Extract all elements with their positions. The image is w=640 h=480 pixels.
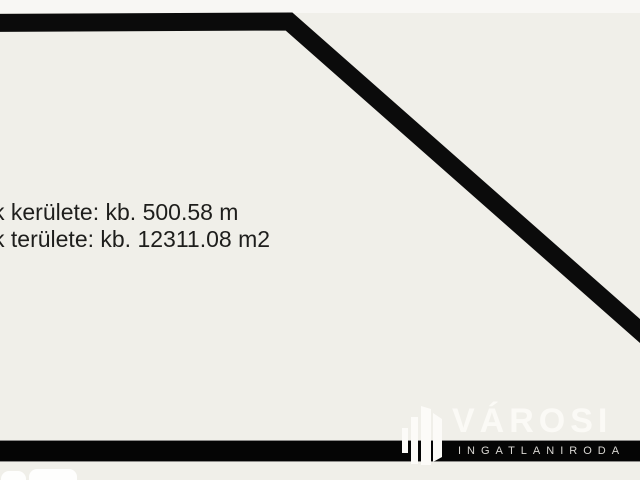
plot-boundary-line — [0, 22, 640, 347]
building-tower — [421, 406, 431, 465]
partial-shape-right — [29, 469, 77, 480]
building-bar-medium — [411, 417, 418, 464]
building-block-right — [433, 413, 442, 462]
logo-subtitle: INGATLANIRODA — [458, 445, 625, 457]
perimeter-label: k kerülete: kb. 500.58 m — [0, 199, 270, 226]
buildings-icon — [398, 403, 448, 465]
building-bar-small — [402, 428, 408, 453]
plot-diagram-page: k kerülete: kb. 500.58 m k területe: kb.… — [0, 0, 640, 480]
brand-name: VÁROSI — [452, 402, 612, 441]
area-label: k területe: kb. 12311.08 m2 — [0, 226, 270, 253]
measurements-block: k kerülete: kb. 500.58 m k területe: kb.… — [0, 199, 270, 252]
partial-shape-left — [1, 471, 26, 480]
